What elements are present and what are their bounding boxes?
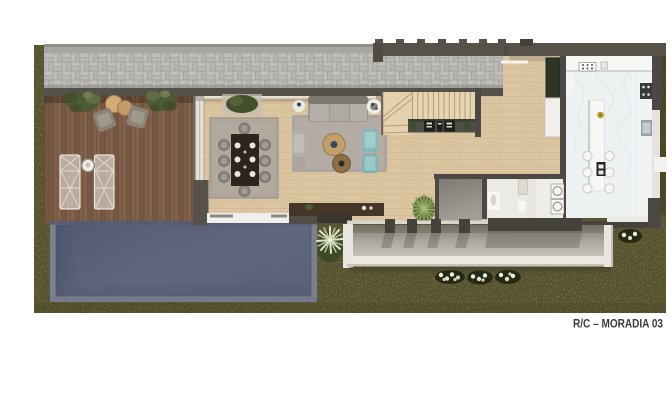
svg-text:R/C – MORADIA 03: R/C – MORADIA 03 bbox=[573, 318, 663, 331]
